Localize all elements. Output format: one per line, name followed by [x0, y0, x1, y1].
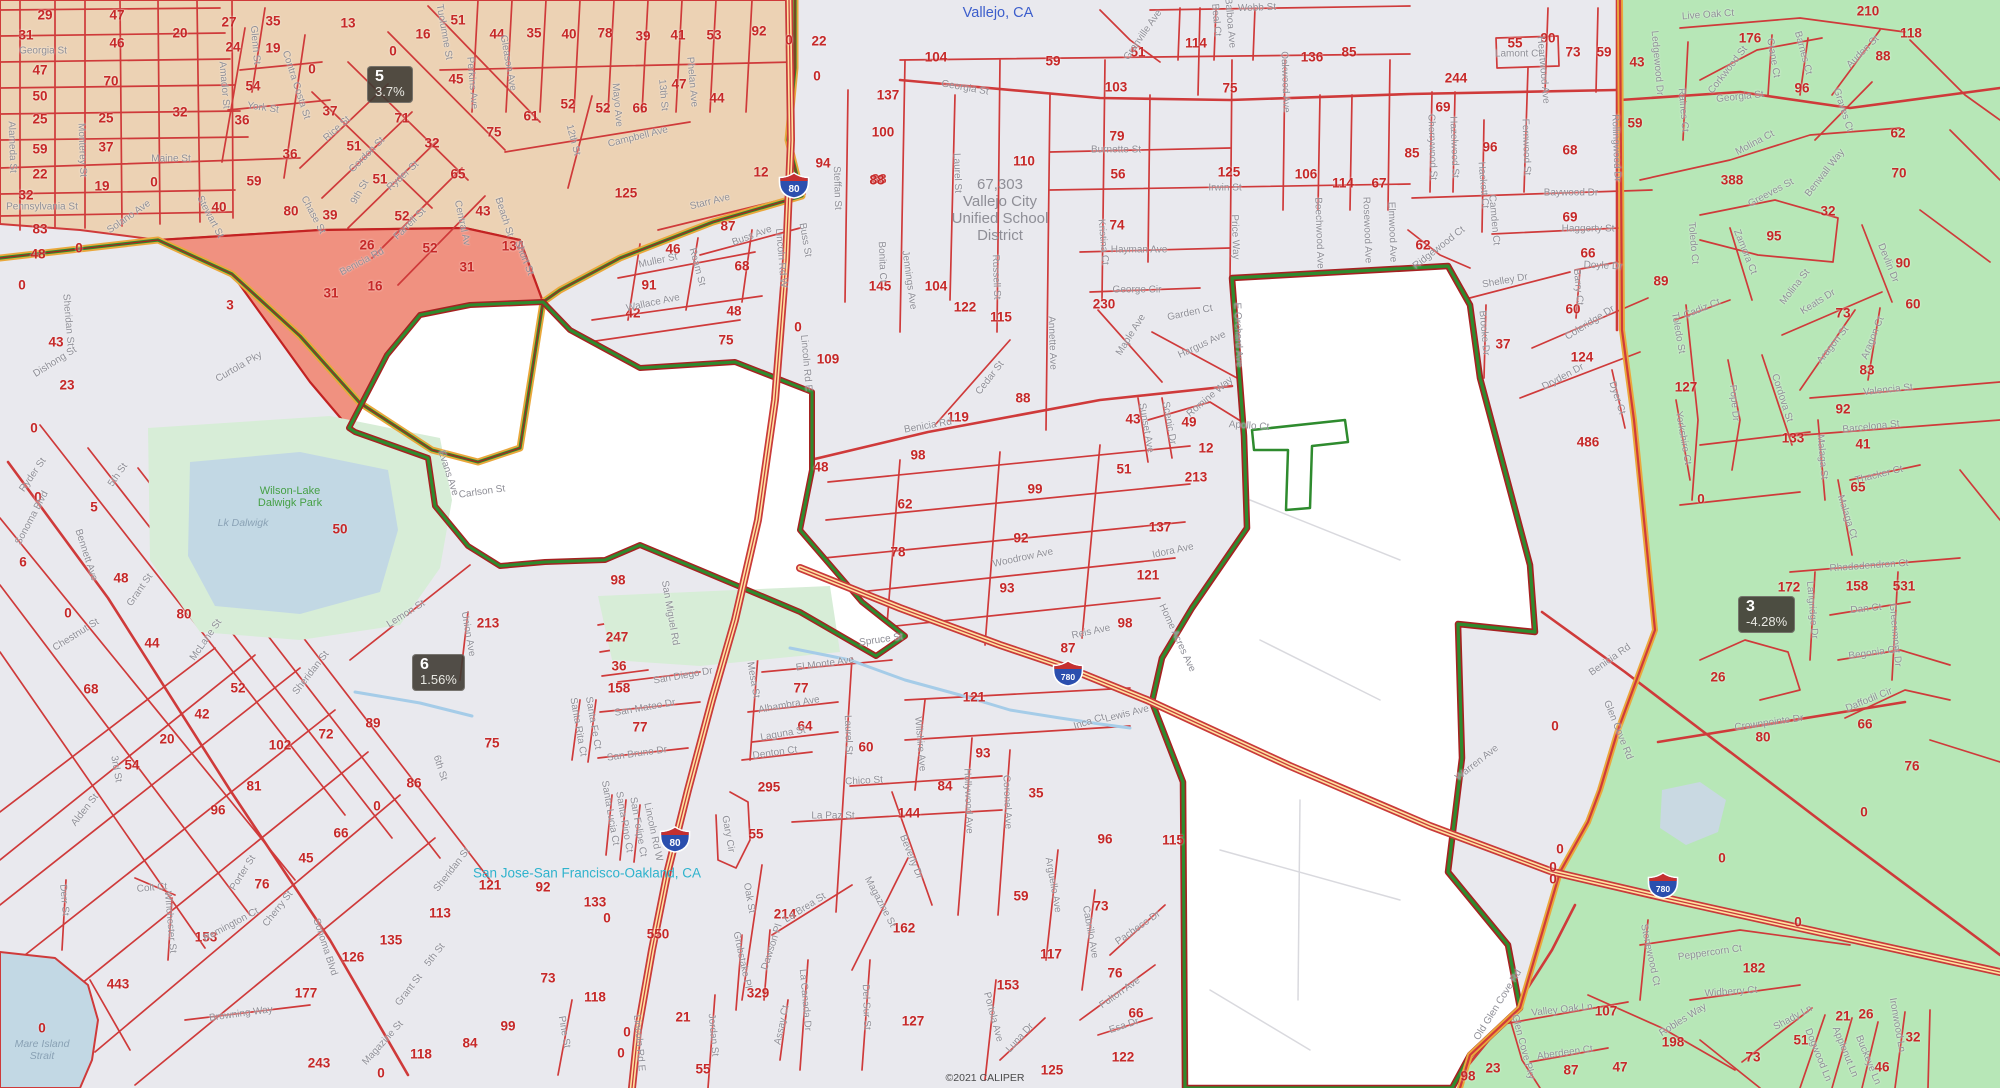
street-name-label: Grant St	[125, 572, 155, 609]
street-name-label: Laguna St	[760, 725, 807, 744]
street-name-label: Monterey St	[76, 123, 89, 177]
street-name-label: Glenn St	[248, 25, 262, 65]
street-name-label: Graves Ct	[1831, 87, 1855, 133]
street-name-label: Live Oak Ct	[1682, 8, 1735, 23]
street-name-label: Lincoln Rd E	[631, 1014, 647, 1071]
parcel-value-label: 127	[902, 1014, 925, 1029]
parcel-value-label: 62	[1890, 126, 1905, 141]
parcel-value-label: 32	[1820, 204, 1835, 219]
parcel-value-label: 19	[265, 41, 280, 56]
street-name-label: Cherry St	[261, 889, 296, 929]
parcel-value-label: 133	[1782, 431, 1805, 446]
street-name-label: Sheridan St	[432, 846, 473, 894]
street-name-label: Campbell Ave	[607, 124, 669, 150]
parcel-value-label: 47	[109, 8, 124, 23]
street-name-label: Balboa Ave	[1222, 0, 1237, 49]
street-name-label: Stonewood Ct	[1638, 923, 1662, 987]
street-name-label: Esa Dr	[1108, 1016, 1140, 1036]
parcel-value-label: 0	[794, 320, 802, 335]
street-name-label: La Paz St	[811, 811, 854, 822]
street-name-label: Union Ave	[459, 611, 478, 658]
parcel-value-label: 3	[226, 298, 234, 313]
parcel-value-label: 70	[103, 74, 118, 89]
street-name-label: 5th St	[106, 461, 130, 489]
parcel-value-label: 125	[1218, 165, 1241, 180]
street-name-label: Remington Ct	[201, 906, 260, 944]
street-name-label: Lincoln Rd E	[798, 334, 814, 391]
parcel-value-label: 32	[424, 136, 439, 151]
street-name-label: Russell St	[990, 254, 1003, 299]
street-name-label: Portola Ave	[981, 991, 1005, 1043]
street-name-label: Dyer Ct	[1607, 380, 1628, 416]
parcel-value-label: 85	[1341, 45, 1356, 60]
strait-label: Mare IslandStrait	[15, 1038, 70, 1062]
street-name-label: Garden Ct	[1166, 303, 1213, 323]
parcel-value-label: 59	[1013, 889, 1028, 904]
street-name-label: Rhododendron Ct	[1829, 558, 1909, 574]
street-name-label: San Miguel Rd	[659, 580, 681, 647]
parcel-value-label: 93	[975, 746, 990, 761]
parcel-value-label: 98	[1460, 1069, 1475, 1084]
parcel-value-label: 48	[30, 247, 45, 262]
parcel-value-label: 70	[1891, 166, 1906, 181]
parcel-value-label: 104	[925, 279, 948, 294]
parcel-value-label: 25	[98, 111, 113, 126]
parcel-value-label: 118	[1900, 26, 1922, 41]
street-name-label: Maine St	[151, 154, 190, 165]
parcel-value-label: 135	[380, 933, 403, 948]
street-name-label: Sheridan St	[291, 649, 332, 697]
parcel-value-label: 12	[1198, 441, 1213, 456]
street-name-label: Dryden Dr	[1540, 361, 1585, 392]
street-name-label: Buss St	[797, 222, 814, 258]
parcel-value-label: 53	[706, 28, 721, 43]
street-name-label: Coronel Ave	[1001, 775, 1014, 830]
street-name-label: Thacker Ct	[1854, 464, 1904, 487]
street-name-label: El Monte Ave	[795, 654, 855, 673]
parcel-value-label: 86	[406, 776, 421, 791]
parcel-value-label: 0	[389, 44, 397, 59]
parcel-value-label: 98	[910, 448, 925, 463]
parcel-value-label: 96	[210, 803, 225, 818]
attribution: ©2021 CALIPER	[946, 1072, 1025, 1084]
street-name-label: Inca Ct	[1072, 712, 1106, 732]
parcel-value-label: 66	[333, 826, 348, 841]
parcel-value-label: 41	[670, 28, 685, 43]
parcel-value-label: 213	[477, 616, 500, 631]
street-name-label: 3rd St	[108, 755, 123, 783]
parcel-value-label: 41	[1855, 437, 1870, 452]
street-name-label: Zamora Ct	[1731, 228, 1759, 276]
parcel-value-label: 59	[246, 174, 261, 189]
parcel-value-label: 0	[18, 278, 26, 293]
parcel-value-label: 35	[526, 26, 541, 41]
parcel-value-label: 98	[610, 573, 625, 588]
parcel-value-label: 16	[415, 27, 430, 42]
parcel-value-label: 66	[1857, 717, 1872, 732]
street-name-label: Cherrywood St	[1425, 114, 1438, 180]
street-name-label: Spruce St	[858, 631, 903, 648]
street-name-label: Dawson Pl	[759, 923, 784, 972]
parcel-value-label: 52	[595, 101, 610, 116]
parcel-value-label: 104	[925, 50, 948, 65]
street-name-label: Winchester St	[162, 891, 178, 954]
parcel-value-label: 87	[720, 219, 735, 234]
street-name-label: Lemon St	[385, 598, 427, 630]
street-name-label: Jennings Ave	[899, 250, 918, 310]
street-name-label: Gary Cir	[719, 815, 736, 854]
street-name-label: Doyle Dr	[1583, 259, 1622, 272]
parcel-value-label: 31	[18, 28, 33, 43]
parcel-value-label: 68	[734, 259, 749, 274]
street-name-label: Rosewood Ave	[1360, 197, 1373, 264]
street-name-label: Greenmont Dr	[1887, 603, 1903, 667]
parcel-value-label: 295	[758, 780, 781, 795]
parcel-value-label: 0	[623, 1025, 631, 1040]
street-name-label: Ryder St	[17, 456, 48, 494]
parcel-value-label: 46	[109, 36, 124, 51]
street-name-label: Jordan St	[706, 1013, 721, 1057]
parcel-value-label: 106	[1295, 167, 1318, 182]
parcel-value-label: 19	[94, 179, 109, 194]
street-name-label: Browning Way	[208, 1004, 273, 1024]
street-name-label: Ryder St	[385, 159, 421, 193]
parcel-value-label: 0	[617, 1046, 625, 1061]
street-name-label: Barnes Ct	[1792, 30, 1814, 76]
metro-label: San Jose-San Francisco-Oakland, CA	[473, 866, 701, 881]
street-name-label: Magazine St	[862, 875, 898, 929]
street-name-label: Toledo Ct	[1686, 221, 1701, 264]
interstate-780-shield: 780	[1052, 660, 1084, 692]
parcel-value-label: 20	[172, 26, 187, 41]
parcel-value-label: 73	[1093, 899, 1108, 914]
parcel-value-label: 48	[726, 304, 741, 319]
park-label: Wilson-LakeDalwigk Park	[258, 485, 322, 509]
parcel-value-label: 137	[877, 88, 900, 103]
map-labels-layer: 2947202735131651443540783941539231462419…	[0, 0, 2000, 1088]
street-name-label: Lamont Ct	[1495, 49, 1541, 60]
street-name-label: Pope Dr	[1727, 384, 1741, 422]
parcel-value-label: 115	[990, 310, 1012, 325]
street-name-label: Corkwood St	[1706, 44, 1750, 96]
parcel-value-label: 32	[18, 188, 33, 203]
parcel-value-label: 77	[632, 720, 647, 735]
parcel-value-label: 81	[246, 779, 261, 794]
street-name-label: Glen Cove Rd	[1601, 699, 1635, 761]
street-name-label: 9th St	[349, 178, 372, 206]
parcel-value-label: 0	[64, 606, 72, 621]
parcel-value-label: 213	[1185, 470, 1208, 485]
city-label: Vallejo, CA	[963, 5, 1034, 21]
parcel-value-label: 0	[373, 799, 381, 814]
parcel-value-label: 50	[32, 89, 47, 104]
parcel-value-label: 48	[113, 571, 128, 586]
parcel-value-label: 124	[1571, 350, 1594, 365]
street-name-label: E Orchard Ave	[1231, 302, 1244, 367]
street-name-label: Price Way	[1229, 214, 1242, 260]
street-name-label: Camden Ct	[1486, 194, 1501, 245]
parcel-value-label: 90	[1895, 256, 1910, 271]
parcel-value-label: 16	[367, 279, 382, 294]
parcel-value-label: 107	[1595, 1004, 1618, 1019]
parcel-value-label: 69	[1562, 210, 1577, 225]
parcel-value-label: 88	[1015, 391, 1030, 406]
parcel-value-label: 0	[38, 1021, 46, 1036]
parcel-value-label: 72	[318, 727, 333, 742]
parcel-value-label: 6	[19, 555, 27, 570]
parcel-value-label: 121	[963, 690, 986, 705]
parcel-value-label: 0	[75, 241, 83, 256]
parcel-value-label: 88	[1875, 49, 1890, 64]
street-name-label: McLane St	[188, 617, 224, 662]
parcel-value-label: 84	[462, 1036, 477, 1051]
street-name-label: Barcelona St	[1842, 419, 1900, 436]
interstate-80-shield: 80	[659, 826, 691, 858]
parcel-value-label: 172	[1778, 580, 1801, 595]
street-name-label: Dogwood Ln	[1802, 1027, 1833, 1083]
street-name-label: Idora Ave	[1151, 541, 1194, 561]
parcel-value-label: 88	[869, 173, 884, 188]
street-name-label: Benicia Rd	[1587, 642, 1633, 679]
street-name-label: Robles Way	[1657, 1001, 1708, 1039]
parcel-value-label: 76	[254, 877, 269, 892]
parcel-value-label: 51	[450, 13, 465, 28]
street-name-label: Home Acres Ave	[1156, 602, 1197, 673]
street-name-label: Peppercorn Ct	[1677, 943, 1742, 963]
district-stat-badge: 3-4.28%	[1738, 596, 1795, 633]
street-name-label: Benwall Way	[1803, 147, 1847, 199]
parcel-value-label: 0	[1556, 842, 1564, 857]
parcel-value-label: 26	[1710, 670, 1725, 685]
street-name-label: Phelan Ave	[684, 56, 699, 107]
street-name-label: Greeves St	[1746, 176, 1795, 209]
street-name-label: Wallace Ave	[625, 292, 681, 314]
street-name-label: Pennsylvania St	[6, 202, 78, 213]
street-name-label: Kristina Ct	[1096, 219, 1111, 266]
parcel-value-label: 93	[999, 581, 1014, 596]
street-name-label: Beal Ct	[1209, 3, 1223, 37]
street-name-label: Arguello Ave	[1043, 856, 1064, 913]
parcel-value-label: 92	[751, 24, 766, 39]
street-name-label: Burnette St	[1091, 145, 1141, 156]
parcel-value-label: 122	[954, 300, 977, 315]
parcel-value-label: 21	[675, 1010, 690, 1025]
parcel-value-label: 37	[322, 104, 337, 119]
parcel-value-label: 51	[1116, 462, 1131, 477]
street-name-label: Lewis Ave	[1104, 703, 1150, 725]
street-name-label: Central Av	[452, 199, 472, 246]
parcel-value-label: 103	[1105, 80, 1128, 95]
parcel-value-label: 43	[475, 204, 490, 219]
parcel-value-label: 125	[615, 186, 638, 201]
street-name-label: Hargus Ave	[1176, 329, 1227, 361]
street-name-label: Amador St	[216, 61, 231, 109]
street-name-label: Raines Ct	[1676, 88, 1691, 133]
street-name-label: Langridge Dr	[1804, 581, 1820, 640]
parcel-value-label: 39	[322, 208, 337, 223]
parcel-value-label: 99	[500, 1019, 515, 1034]
street-name-label: Georgia St	[1716, 89, 1765, 105]
parcel-value-label: 244	[1445, 71, 1468, 86]
interstate-80-shield: 80	[778, 172, 810, 204]
street-name-label: Solano Ave	[105, 198, 153, 236]
parcel-value-label: 75	[486, 125, 501, 140]
parcel-value-label: 0	[1551, 719, 1559, 734]
parcel-value-label: 24	[225, 40, 240, 55]
parcel-value-label: 182	[1743, 961, 1766, 976]
parcel-value-label: 75	[484, 736, 499, 751]
parcel-value-label: 27	[221, 15, 236, 30]
parcel-value-label: 79	[1109, 129, 1124, 144]
parcel-value-label: 42	[194, 707, 209, 722]
parcel-value-label: 127	[1675, 380, 1698, 395]
parcel-value-label: 0	[785, 33, 793, 48]
parcel-value-label: 37	[1495, 337, 1510, 352]
parcel-value-label: 531	[1893, 579, 1916, 594]
street-name-label: Alameda St	[6, 121, 19, 173]
street-name-label: Grubstake Pl	[731, 931, 754, 990]
parcel-value-label: 115	[1162, 833, 1184, 848]
svg-text:780: 780	[1061, 672, 1075, 682]
parcel-value-label: 136	[1301, 50, 1324, 65]
parcel-value-label: 0	[1549, 872, 1557, 887]
parcel-value-label: 35	[1028, 786, 1043, 801]
street-name-label: Brooke Dr	[1477, 310, 1492, 356]
street-name-label: Steffan St	[831, 166, 844, 210]
street-name-label: San Bruno Dr	[606, 744, 668, 763]
street-name-label: Malaga St	[1815, 434, 1830, 480]
street-name-label: Webb St	[1238, 2, 1277, 14]
parcel-value-label: 177	[295, 986, 318, 1001]
street-name-label: Ream St	[687, 247, 708, 287]
parcel-value-label: 77	[793, 681, 808, 696]
street-name-label: Warren Ave	[1453, 743, 1501, 783]
parcel-value-label: 76	[1904, 759, 1919, 774]
street-name-label: La Canada Dr	[797, 969, 813, 1032]
parcel-value-label: 80	[283, 204, 298, 219]
street-name-label: Ironwood Ln	[1887, 997, 1907, 1053]
parcel-value-label: 95	[1766, 229, 1781, 244]
parcel-value-label: 59	[1627, 116, 1642, 131]
parcel-value-label: 121	[1137, 568, 1160, 583]
street-name-label: Magazine St	[360, 1019, 405, 1068]
parcel-value-label: 55	[695, 1062, 710, 1077]
parcel-value-label: 118	[410, 1047, 432, 1062]
parcel-value-label: 47	[1612, 1060, 1627, 1075]
street-name-label: Wilshire Ave	[912, 716, 928, 772]
parcel-value-label: 158	[1846, 579, 1869, 594]
street-name-label: Ledgewood Dr	[1649, 30, 1666, 96]
parcel-value-label: 50	[332, 522, 347, 537]
parcel-value-label: 83	[1859, 363, 1874, 378]
street-name-label: Irwin St	[1208, 183, 1241, 194]
street-name-label: Widberry Ct	[1704, 985, 1757, 1000]
parcel-value-label: 66	[632, 101, 647, 116]
parcel-value-label: 80	[176, 607, 191, 622]
parcel-value-label: 48	[813, 460, 828, 475]
district-stat-badge: 61.56%	[412, 654, 465, 691]
parcel-value-label: 23	[59, 378, 74, 393]
parcel-value-label: 133	[584, 895, 607, 910]
street-name-label: Pacheco Dr	[1113, 909, 1162, 948]
street-name-label: Bonita Ct	[876, 241, 888, 282]
street-name-label: Alden St	[69, 792, 101, 829]
parcel-value-label: 52	[230, 681, 245, 696]
map-viewport[interactable]: 2947202735131651443540783941539231462419…	[0, 0, 2000, 1088]
parcel-value-label: 110	[1013, 154, 1035, 169]
street-name-label: Curtola Pky	[214, 349, 264, 384]
parcel-value-label: 74	[1109, 218, 1124, 233]
parcel-value-label: 75	[718, 333, 733, 348]
street-name-label: Evans Ave	[435, 449, 460, 497]
street-name-label: Beach St	[492, 196, 515, 238]
parcel-value-label: 36	[282, 147, 297, 162]
parcel-value-label: 550	[647, 927, 670, 942]
parcel-value-label: 25	[32, 112, 47, 127]
street-name-label: Romine Way	[1185, 375, 1236, 420]
parcel-value-label: 55	[748, 827, 763, 842]
street-name-label: George Cir	[1113, 285, 1162, 296]
street-name-label: Gleason Ave	[498, 34, 519, 92]
parcel-value-label: 210	[1857, 4, 1880, 19]
parcel-value-label: 36	[234, 113, 249, 128]
parcel-value-label: 153	[997, 978, 1020, 993]
parcel-value-label: 73	[540, 971, 555, 986]
street-name-label: Heartwood Ave	[1535, 36, 1552, 104]
street-name-label: Laurel St	[842, 715, 854, 755]
street-name-label: Luna Dr	[1004, 1021, 1036, 1055]
street-name-label: Georgia St	[941, 78, 990, 97]
parcel-value-label: 75	[1222, 81, 1237, 96]
street-name-label: Benicia Rd	[903, 416, 953, 435]
street-name-label: Assay Ct	[772, 1004, 791, 1045]
parcel-value-label: 52	[560, 97, 575, 112]
parcel-value-label: 68	[1562, 143, 1577, 158]
parcel-value-label: 61	[523, 109, 538, 124]
street-name-label: 12th St	[564, 123, 583, 156]
street-name-label: Aragon Ct	[1859, 315, 1886, 361]
parcel-value-label: 96	[1794, 81, 1809, 96]
parcel-value-label: 388	[1721, 173, 1744, 188]
street-name-label: Aragon St	[1815, 324, 1851, 366]
parcel-value-label: 23	[1485, 1061, 1500, 1076]
street-name-label: Aberdeen Ct	[1536, 1044, 1593, 1063]
parcel-value-label: 40	[561, 27, 576, 42]
street-name-label: Yorkshire Ct	[1673, 410, 1693, 465]
parcel-value-label: 486	[1577, 435, 1600, 450]
district-label: 67,303Vallejo CityUnified SchoolDistrict	[952, 176, 1049, 244]
parcel-value-label: 5	[90, 500, 98, 515]
svg-text:80: 80	[788, 184, 800, 195]
street-name-label: Fernwood St	[1520, 118, 1533, 175]
parcel-value-label: 78	[597, 26, 612, 41]
parcel-value-label: 59	[1045, 54, 1060, 69]
parcel-value-label: 0	[1697, 492, 1705, 507]
parcel-value-label: 36	[611, 659, 626, 674]
interstate-780-shield: 780	[1647, 872, 1679, 904]
parcel-value-label: 32	[172, 105, 187, 120]
parcel-value-label: 51	[346, 139, 361, 154]
street-name-label: Buss Ave	[731, 224, 774, 249]
street-name-label: Denton Ct	[752, 744, 798, 761]
street-name-label: Hollywood Ave	[961, 768, 974, 834]
parcel-value-label: 113	[429, 906, 451, 921]
parcel-value-label: 89	[1653, 274, 1668, 289]
parcel-value-label: 43	[48, 335, 63, 350]
street-name-label: Daffodil Cir	[1844, 686, 1894, 715]
parcel-value-label: 73	[1565, 45, 1580, 60]
parcel-value-label: 137	[1149, 520, 1172, 535]
